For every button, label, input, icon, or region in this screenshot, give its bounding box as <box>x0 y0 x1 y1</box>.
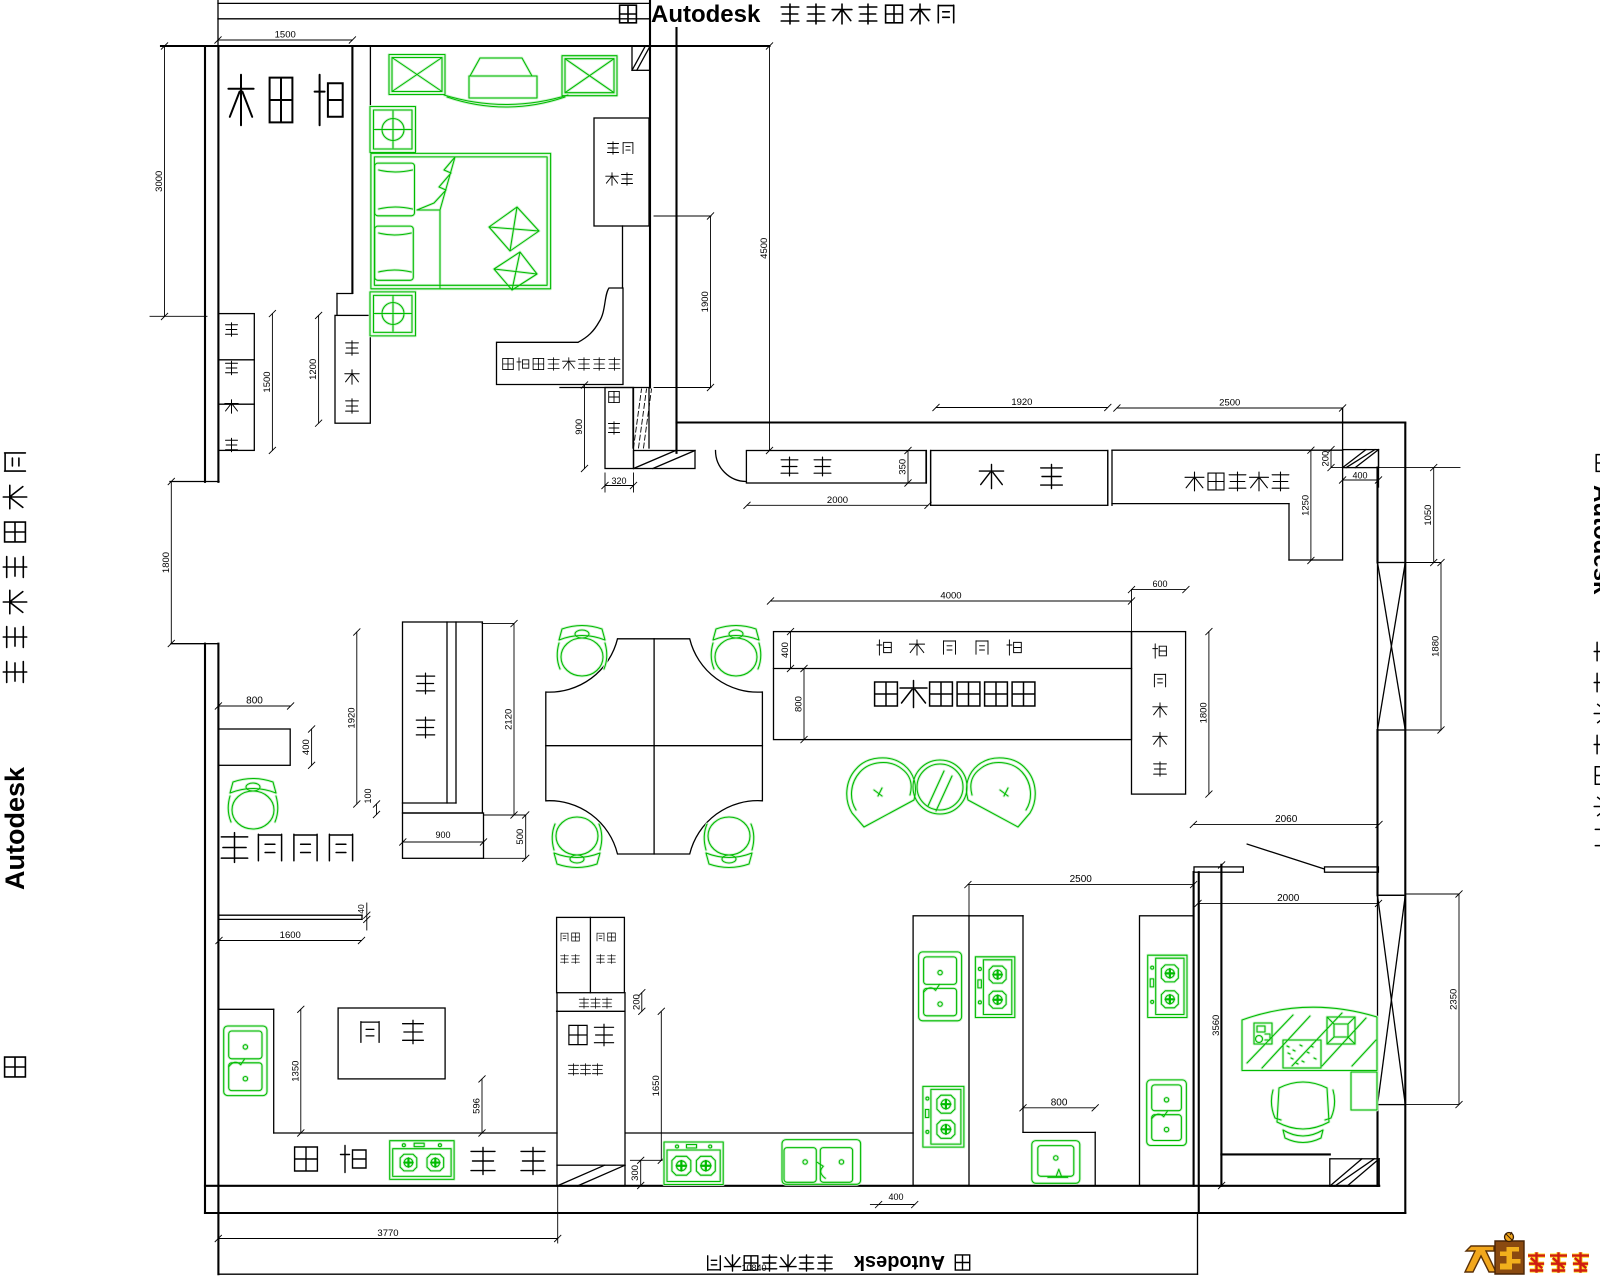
svg-text:2500: 2500 <box>1070 874 1093 885</box>
svg-text:320: 320 <box>611 476 626 486</box>
svg-text:1800: 1800 <box>1198 702 1209 723</box>
svg-text:1500: 1500 <box>262 371 273 392</box>
svg-text:Autodesk: Autodesk <box>853 1251 945 1273</box>
svg-text:4000: 4000 <box>940 591 961 602</box>
svg-text:2350: 2350 <box>1449 989 1460 1010</box>
svg-text:1900: 1900 <box>700 291 711 312</box>
svg-text:2000: 2000 <box>827 495 848 506</box>
svg-text:1350: 1350 <box>290 1061 301 1082</box>
svg-text:1920: 1920 <box>1011 397 1032 408</box>
svg-text:350: 350 <box>898 459 909 475</box>
svg-text:1050: 1050 <box>1423 505 1434 526</box>
svg-text:1880: 1880 <box>1431 636 1442 657</box>
svg-text:3000: 3000 <box>154 171 165 192</box>
svg-text:1650: 1650 <box>651 1075 662 1096</box>
svg-text:Autodesk: Autodesk <box>651 1 761 28</box>
svg-text:2060: 2060 <box>1275 814 1298 825</box>
svg-text:200: 200 <box>1321 451 1332 467</box>
svg-text:900: 900 <box>435 830 450 840</box>
svg-text:4500: 4500 <box>759 238 770 259</box>
svg-text:400: 400 <box>1352 471 1367 481</box>
svg-text:400: 400 <box>888 1192 903 1202</box>
svg-text:100: 100 <box>363 788 373 803</box>
svg-text:Autodesk: Autodesk <box>0 766 30 890</box>
svg-text:600: 600 <box>1152 579 1167 589</box>
svg-text:1250: 1250 <box>1300 495 1311 516</box>
svg-text:300: 300 <box>630 1165 641 1181</box>
svg-text:1500: 1500 <box>275 30 296 41</box>
svg-text:1920: 1920 <box>346 707 357 728</box>
svg-text:596: 596 <box>472 1098 483 1114</box>
svg-text:40: 40 <box>356 904 366 914</box>
svg-text:2120: 2120 <box>504 709 515 730</box>
svg-text:2000: 2000 <box>1277 893 1300 904</box>
svg-text:10840: 10840 <box>741 1263 766 1273</box>
svg-text:400: 400 <box>301 739 312 755</box>
svg-text:400: 400 <box>780 642 791 658</box>
svg-text:900: 900 <box>574 419 585 435</box>
svg-text:800: 800 <box>246 696 263 707</box>
svg-text:3770: 3770 <box>377 1228 398 1239</box>
svg-text:1600: 1600 <box>280 930 301 941</box>
svg-text:500: 500 <box>515 829 526 845</box>
svg-text:200: 200 <box>631 994 642 1010</box>
svg-text:1800: 1800 <box>161 552 172 573</box>
svg-text:800: 800 <box>794 696 805 712</box>
svg-text:Autodesk: Autodesk <box>1588 485 1600 595</box>
svg-text:800: 800 <box>1051 1097 1068 1108</box>
svg-text:1200: 1200 <box>308 359 319 380</box>
svg-text:2500: 2500 <box>1219 398 1240 409</box>
